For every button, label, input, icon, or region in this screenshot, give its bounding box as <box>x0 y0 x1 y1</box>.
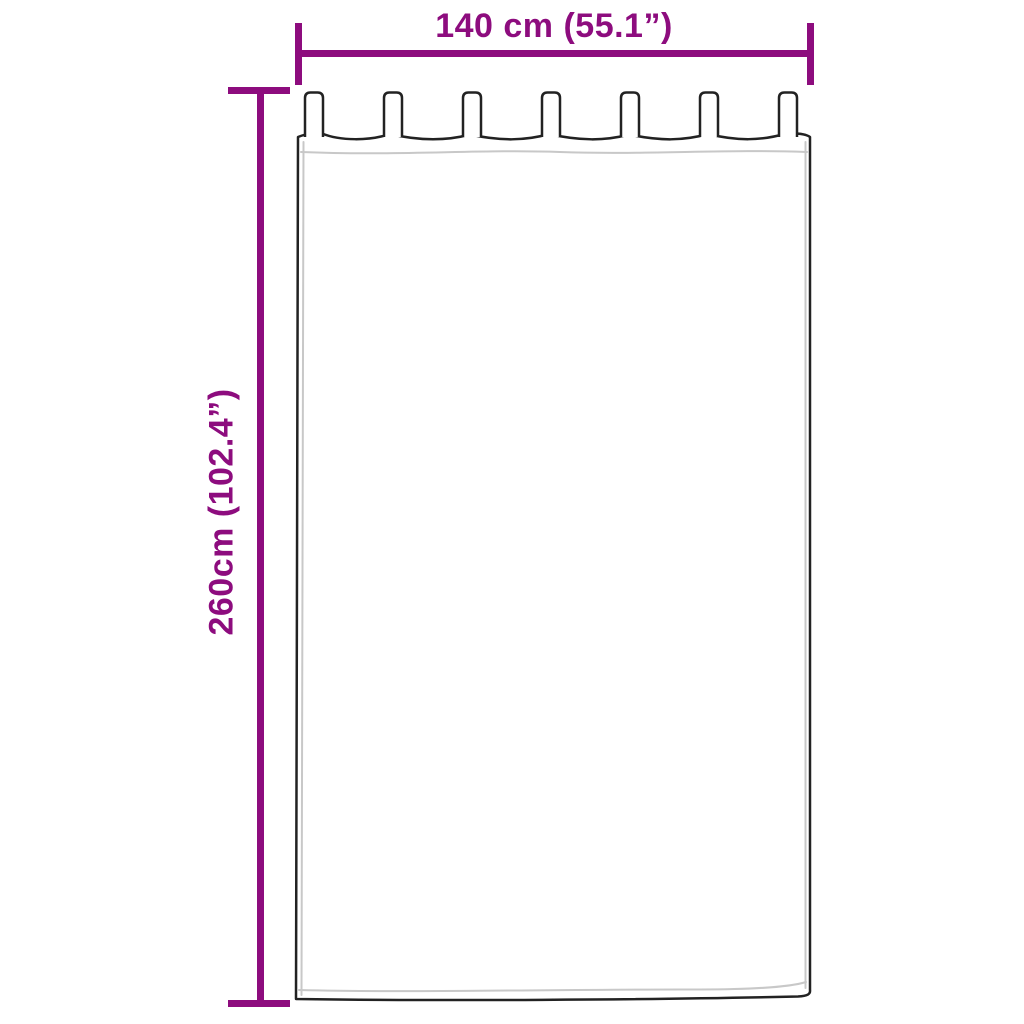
height-dimension-cap-bottom <box>228 1000 290 1007</box>
height-dimension-line <box>257 90 264 1004</box>
width-dimension-label: 140 cm (55.1”) <box>298 7 810 46</box>
curtain-tab <box>542 93 560 138</box>
curtain-tabs <box>305 93 797 138</box>
curtain-panel <box>296 133 810 1000</box>
curtain-tab <box>463 93 481 138</box>
curtain-tab <box>305 93 323 138</box>
curtain-tab <box>779 93 797 138</box>
curtain-tab <box>700 93 718 138</box>
curtain-tab <box>621 93 639 138</box>
height-dimension-label: 260cm (102.4”) <box>203 388 242 635</box>
width-dimension-line <box>298 50 810 57</box>
dimension-diagram: 140 cm (55.1”) 260cm (102.4”) <box>0 0 1024 1024</box>
height-dimension-cap-top <box>228 87 290 94</box>
curtain-illustration <box>0 0 1024 1024</box>
curtain-tab <box>384 93 402 138</box>
